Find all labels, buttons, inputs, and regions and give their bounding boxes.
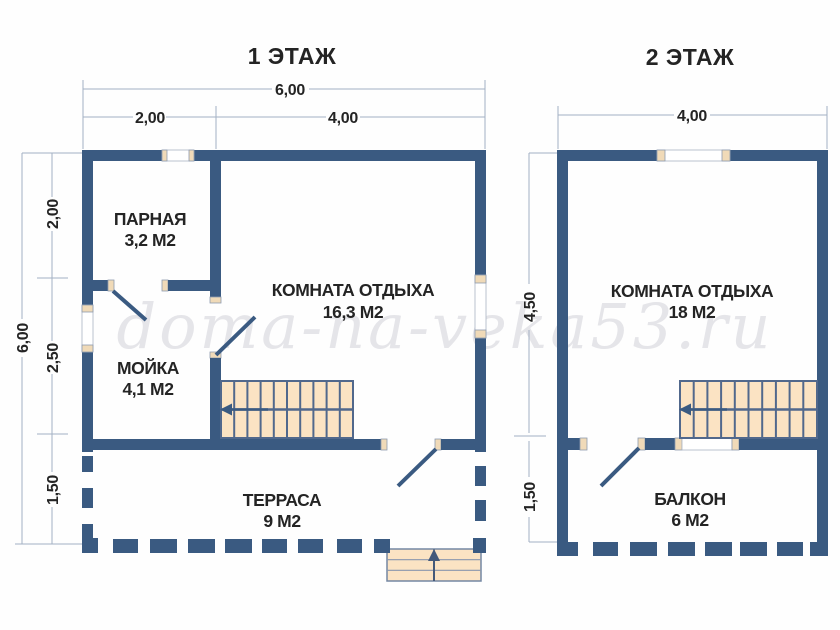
entrance-steps [387, 549, 481, 581]
floor1-bottom-wall-right [441, 439, 486, 450]
floor1-top-window [162, 150, 194, 161]
floor1-width-right-label: 4,00 [328, 110, 358, 127]
floor2-right-wall [817, 150, 828, 556]
floor1-interior-wall-lower [210, 358, 221, 439]
floor2-stairs [679, 381, 817, 438]
stair-landing-jamb [732, 438, 739, 450]
floor2-title: 2 ЭТАЖ [646, 44, 735, 70]
door-jamb [162, 280, 168, 291]
room-area-komnata-otdyha-1: 16,3 М2 [323, 302, 384, 322]
room-area-terrasa: 9 М2 [263, 511, 301, 531]
room-label-komnata-otdyha-2: КОМНАТА ОТДЫХА [611, 281, 774, 301]
floor1-top-wall [82, 150, 486, 161]
floor2-height-bottom-label: 1,50 [522, 482, 539, 512]
floor1-room-labels: ПАРНАЯ 3,2 М2 КОМНАТА ОТДЫХА 16,3 М2 МОЙ… [114, 209, 435, 531]
floor1-bottom-wall-left [93, 439, 381, 450]
balcony-door-leaf [601, 448, 639, 486]
floor1-sauna-wall-left [93, 280, 108, 291]
floor1-stairs [220, 381, 353, 438]
room-label-komnata-otdyha-1: КОМНАТА ОТДЫХА [272, 280, 435, 300]
floor1-width-total-label: 6,00 [275, 82, 305, 99]
stair-landing-jamb [675, 438, 682, 450]
room-label-moyka: МОЙКА [117, 357, 180, 378]
floor1-interior-wall-upper [210, 161, 221, 297]
floor1-width-left-label: 2,00 [135, 110, 165, 127]
floor1-left-window [82, 305, 93, 352]
room-area-komnata-otdyha-2: 18 М2 [669, 302, 716, 322]
floor2-balcony-wall [568, 438, 817, 450]
terrace-door-leaf [398, 449, 436, 486]
floor1-right-window [475, 275, 486, 338]
door-jamb [210, 297, 221, 303]
room-label-parnaya: ПАРНАЯ [114, 209, 186, 229]
door-jamb [381, 439, 387, 450]
floor2-top-window [657, 150, 730, 161]
room-area-parnaya: 3,2 М2 [124, 230, 176, 250]
floor1-height-total-label: 6,00 [15, 323, 32, 353]
room-label-terrasa: ТЕРРАСА [243, 490, 322, 510]
door-jamb [108, 280, 114, 291]
floor1-height-middle-label: 2,50 [45, 343, 62, 373]
room-label-balkon: БАЛКОН [654, 489, 726, 509]
floor-plan-drawing: doma-na-veka53.ru 6,00 2,00 4,00 6,00 2,… [0, 0, 840, 630]
floor2-width-total-label: 4,00 [677, 108, 707, 125]
floor2-height-top-label: 4,50 [522, 292, 539, 322]
floor1-left-wall [82, 150, 93, 452]
stair-landing-opening [682, 438, 732, 450]
floor1-sauna-wall-right [168, 280, 210, 291]
room-area-balkon: 6 М2 [671, 510, 709, 530]
door-jamb [435, 439, 441, 450]
door-jamb [580, 438, 587, 450]
balcony-dashed-wall [557, 542, 828, 556]
room-area-moyka: 4,1 М2 [122, 379, 174, 399]
floor1-height-bottom-label: 1,50 [45, 475, 62, 505]
floor1-title: 1 ЭТАЖ [248, 43, 337, 69]
floor2-left-wall [557, 150, 568, 556]
floor-plan-canvas: doma-na-veka53.ru 6,00 2,00 4,00 6,00 2,… [0, 0, 840, 630]
floor1-height-top-label: 2,00 [45, 199, 62, 229]
